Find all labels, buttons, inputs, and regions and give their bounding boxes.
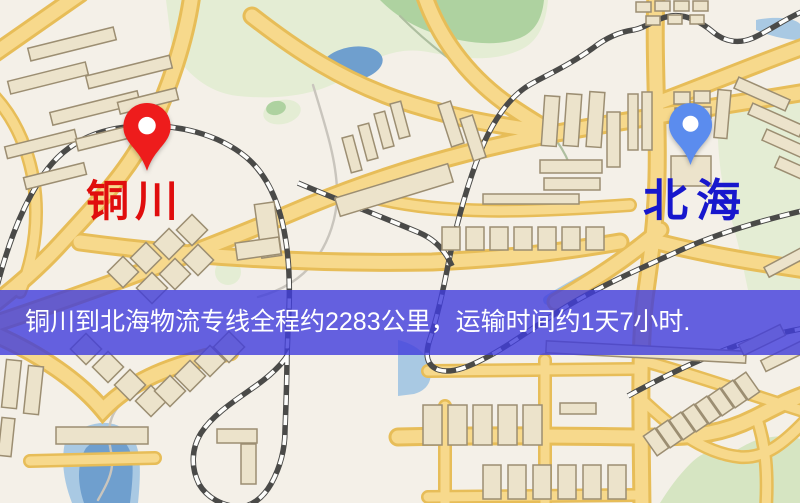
route-summary-banner: 铜川到北海物流专线全程约2283公里，运输时间约1天7小时. [0,290,800,355]
origin-pin-icon[interactable] [122,102,172,174]
logistics-route-map: 铜川 北海 铜川到北海物流专线全程约2283公里，运输时间约1天7小时. [0,0,800,503]
destination-pin-icon[interactable] [668,102,713,168]
destination-label: 北海 [643,178,749,223]
route-summary-text: 铜川到北海物流专线全程约2283公里，运输时间约1天7小时. [25,308,690,336]
map-image [0,0,800,503]
origin-label: 铜川 [86,181,184,224]
